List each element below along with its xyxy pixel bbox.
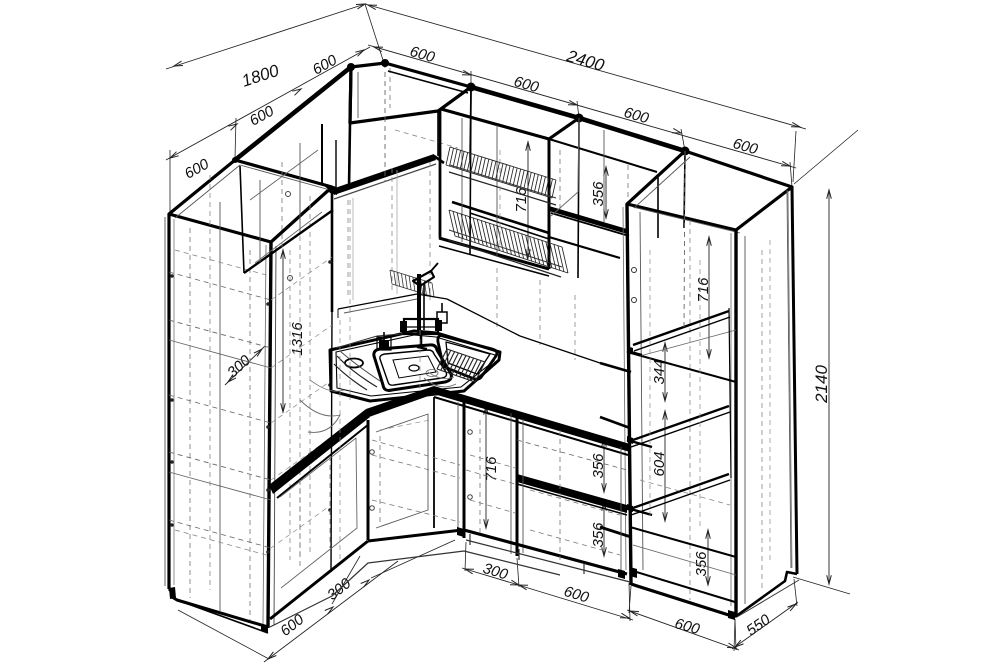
svg-text:2140: 2140 [812, 365, 831, 404]
svg-text:604: 604 [651, 451, 668, 476]
svg-text:716: 716 [695, 277, 712, 303]
svg-text:716: 716 [483, 456, 500, 482]
svg-text:356: 356 [590, 453, 607, 479]
svg-text:356: 356 [590, 522, 607, 548]
svg-text:1316: 1316 [289, 322, 306, 356]
